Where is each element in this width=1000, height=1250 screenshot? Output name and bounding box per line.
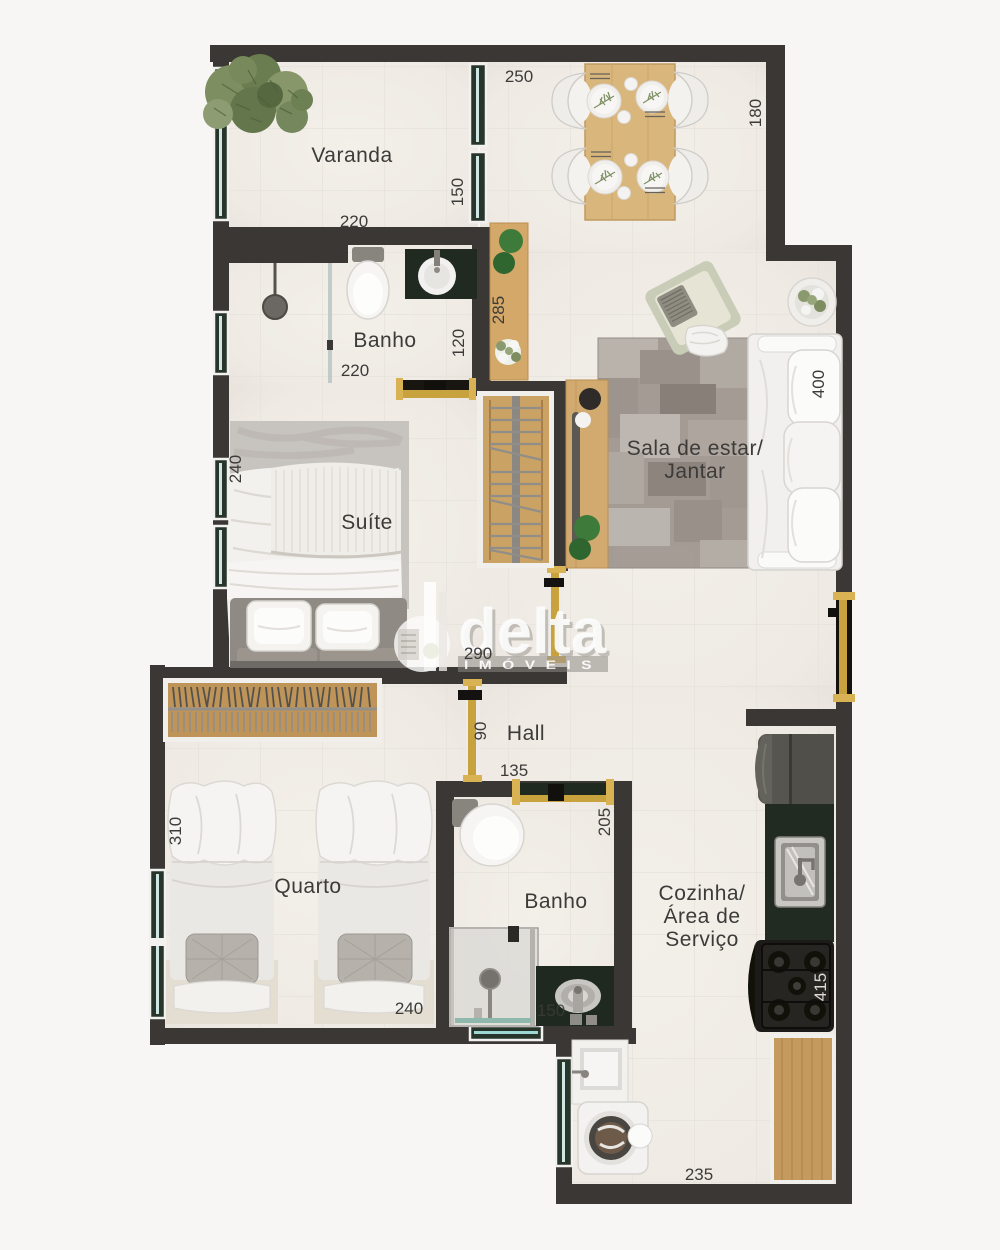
svg-text:250: 250 — [505, 67, 533, 86]
svg-text:Jantar: Jantar — [664, 460, 725, 483]
svg-text:415: 415 — [811, 973, 830, 1001]
svg-text:135: 135 — [500, 761, 528, 780]
svg-text:205: 205 — [595, 808, 614, 836]
svg-text:290: 290 — [464, 644, 492, 663]
svg-text:120: 120 — [449, 329, 468, 357]
svg-text:Área de: Área de — [663, 905, 740, 928]
svg-text:Banho: Banho — [353, 329, 416, 352]
svg-text:Serviço: Serviço — [665, 928, 739, 951]
svg-text:Cozinha/: Cozinha/ — [659, 882, 746, 905]
svg-text:220: 220 — [340, 212, 368, 231]
svg-text:285: 285 — [489, 296, 508, 324]
svg-text:310: 310 — [166, 817, 185, 845]
svg-text:Hall: Hall — [507, 722, 545, 745]
svg-text:Sala de estar/: Sala de estar/ — [627, 437, 764, 460]
svg-text:400: 400 — [809, 370, 828, 398]
svg-text:150: 150 — [537, 1001, 565, 1020]
svg-text:Suíte: Suíte — [341, 511, 393, 534]
svg-text:235: 235 — [685, 1165, 713, 1184]
svg-text:220: 220 — [341, 361, 369, 380]
svg-text:150: 150 — [448, 178, 467, 206]
svg-text:Quarto: Quarto — [274, 875, 341, 898]
svg-text:Varanda: Varanda — [311, 144, 392, 167]
svg-text:90: 90 — [471, 722, 490, 741]
svg-text:180: 180 — [746, 99, 765, 127]
svg-text:240: 240 — [395, 999, 423, 1018]
svg-text:Banho: Banho — [524, 890, 587, 913]
svg-text:240: 240 — [226, 455, 245, 483]
